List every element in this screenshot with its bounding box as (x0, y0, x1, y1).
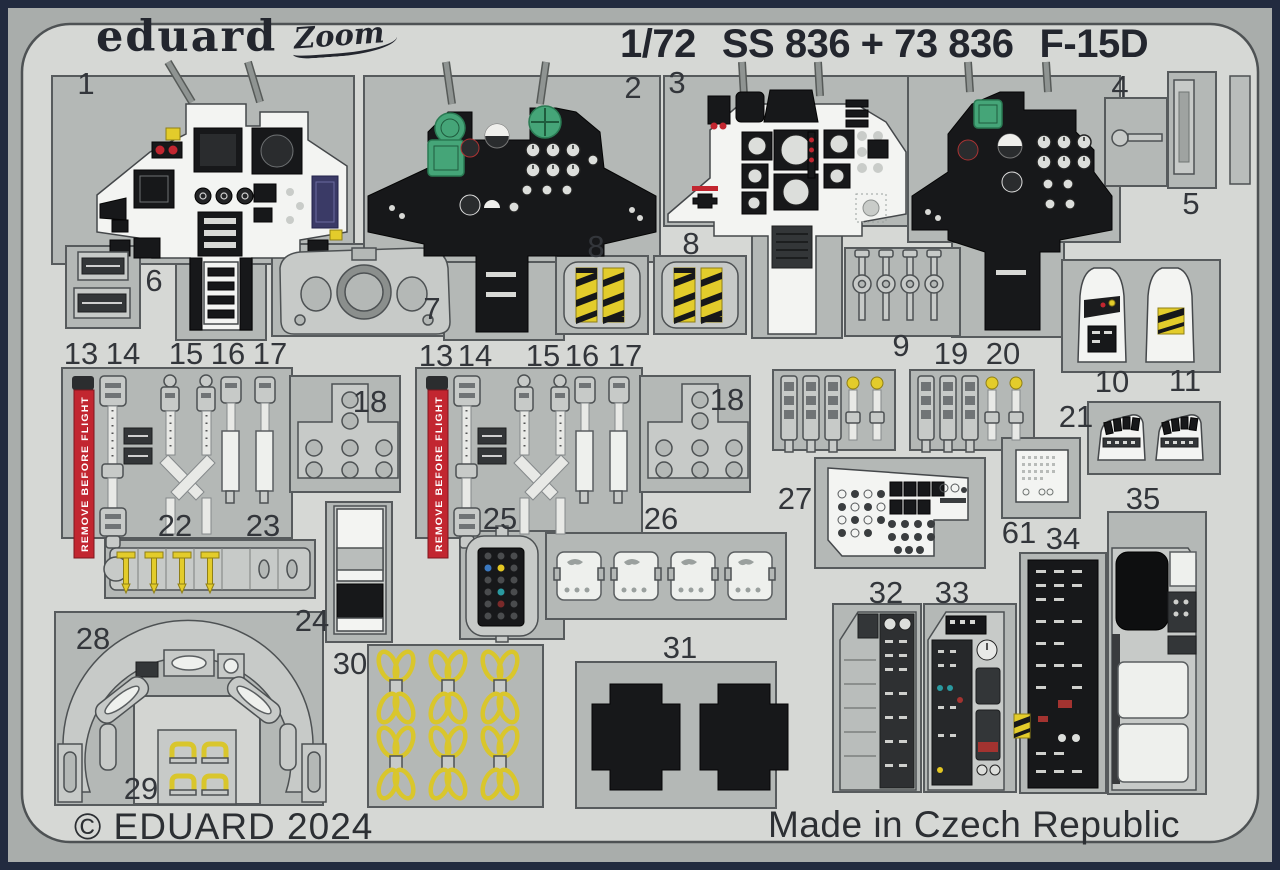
photoetch-sheet-photo: REMOVE BEFORE FLIGHT (0, 0, 1280, 870)
part-label-15a: 15 (169, 336, 203, 372)
part-label-13a: 13 (64, 336, 98, 372)
part-35-console-panel (1112, 548, 1196, 790)
part-label-35: 35 (1126, 481, 1160, 517)
part-label-18a: 18 (353, 384, 387, 420)
part-label-16a: 16 (211, 336, 245, 372)
part-11-side-console (1146, 268, 1194, 362)
part-label-23: 23 (246, 508, 280, 544)
part-61-keypad-panel (1016, 450, 1068, 502)
part-25-keypad-panel (466, 526, 538, 642)
aircraft-label: F-15D (1040, 22, 1149, 67)
part-label-16b: 16 (565, 338, 599, 374)
part-label-32: 32 (869, 575, 903, 611)
part-label-24: 24 (295, 603, 329, 639)
part-label-30: 30 (333, 646, 367, 682)
scale-label: 1/72 (620, 22, 696, 67)
part-label-8b: 8 (682, 226, 699, 262)
part-label-33: 33 (935, 575, 969, 611)
sheet-title: 1/72 SS 836 + 73 836 F-15D (620, 22, 1220, 67)
part-22-23-hinge-strip (104, 548, 310, 593)
pe-fret-illustration: REMOVE BEFORE FLIGHT (0, 0, 1280, 870)
part-label-15b: 15 (526, 338, 560, 374)
part-label-18b: 18 (710, 382, 744, 418)
part-label-5: 5 (1182, 186, 1199, 222)
part-label-34: 34 (1046, 521, 1080, 557)
part-label-21: 21 (1059, 399, 1093, 435)
part-label-22: 22 (158, 508, 192, 544)
eduard-logo: eduard (96, 12, 277, 62)
part-label-27: 27 (778, 481, 812, 517)
part-label-14b: 14 (458, 338, 492, 374)
part-label-20: 20 (986, 336, 1020, 372)
part-label-31: 31 (663, 630, 697, 666)
part-label-61: 61 (1002, 515, 1036, 551)
part-label-17b: 17 (608, 338, 642, 374)
made-in-text: Made in Czech Republic (768, 804, 1180, 846)
copyright-text: © EDUARD 2024 (74, 806, 373, 848)
part-label-10: 10 (1095, 364, 1129, 400)
part-label-7: 7 (423, 291, 440, 327)
part-label-4: 4 (1111, 69, 1128, 105)
part-label-6: 6 (145, 263, 162, 299)
part-label-26: 26 (644, 501, 678, 537)
part-label-2: 2 (624, 70, 641, 106)
part-10-side-console (1078, 268, 1126, 362)
part-label-8a: 8 (587, 229, 604, 265)
part-label-17a: 17 (253, 336, 287, 372)
part-label-14a: 14 (106, 336, 140, 372)
part-32-console-panel (840, 612, 916, 790)
part-label-29: 29 (124, 771, 158, 807)
part-33-console-panel (928, 612, 1004, 790)
part-24-strip (334, 506, 386, 634)
product-code-label: SS 836 + 73 836 (722, 22, 1014, 67)
part-label-1: 1 (77, 66, 94, 102)
part-label-9: 9 (892, 328, 909, 364)
part-label-25: 25 (483, 501, 517, 537)
part-label-19: 19 (934, 336, 968, 372)
part-label-11: 11 (1169, 363, 1201, 399)
part-label-13b: 13 (419, 338, 453, 374)
part-29-dring-plate (158, 730, 236, 804)
part-label-3: 3 (668, 65, 685, 101)
part-label-28: 28 (76, 621, 110, 657)
